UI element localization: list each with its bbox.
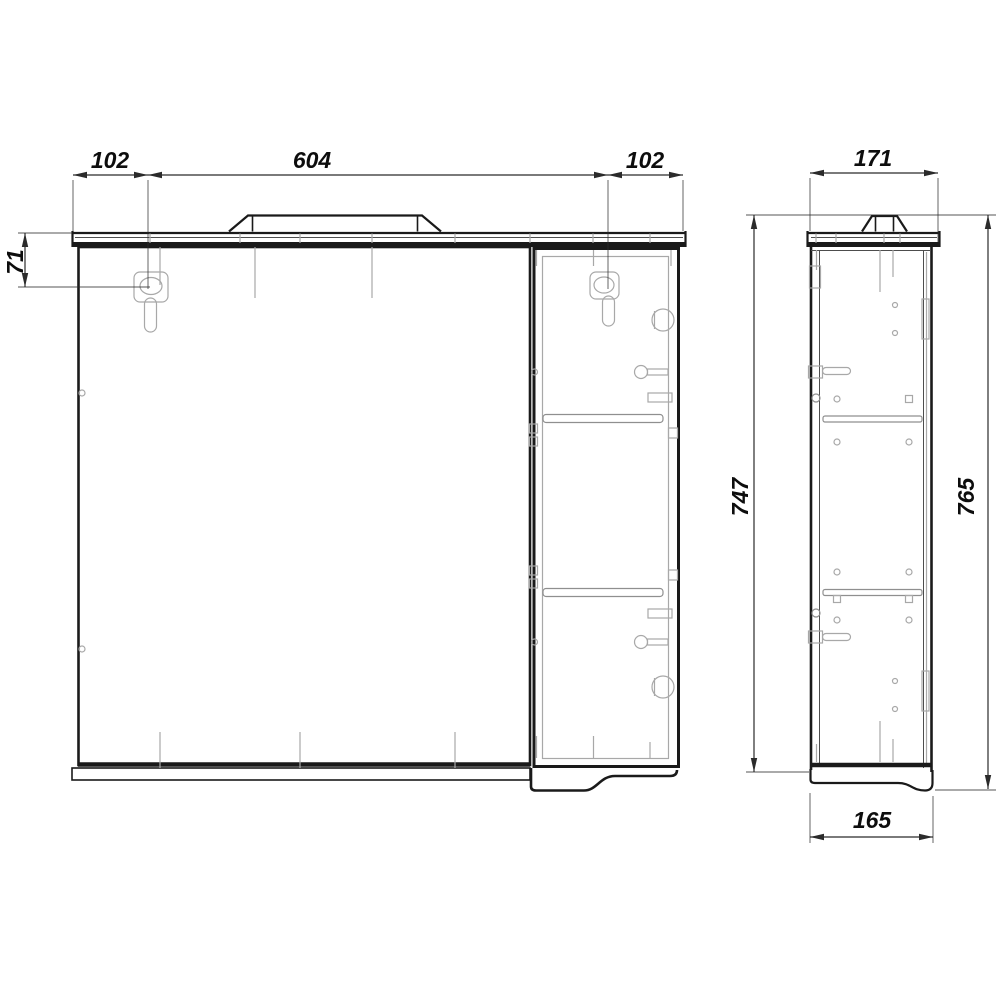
- dim-label-765: 765: [953, 477, 979, 517]
- top-canopy: [72, 231, 686, 247]
- dim-front-width-center: 604: [148, 147, 608, 175]
- side-top-canopy: [808, 231, 941, 247]
- dim-label-165: 165: [853, 807, 893, 833]
- front-view: [72, 216, 686, 791]
- shelf-top: [543, 415, 663, 423]
- dim-label-171: 171: [854, 145, 892, 171]
- wall-screw-hole: [812, 394, 820, 402]
- door-bottom-lip: [531, 768, 677, 791]
- door-pin-holes: [893, 303, 898, 712]
- hinge-cup-bottom: [652, 676, 674, 698]
- dim-label-604: 604: [293, 147, 332, 173]
- hinge-plate-bottom: [809, 631, 851, 643]
- hinge-cup-top: [652, 309, 674, 331]
- canopy-dowel-marks: [150, 234, 650, 244]
- side-lamp-housing: [862, 216, 907, 232]
- shelf-bottom: [543, 589, 663, 597]
- mirror-cabinet-drawing: 102 604 102 71 171 747: [0, 0, 1000, 1000]
- shelf-pin-top: [532, 366, 669, 379]
- technical-drawing-canvas: 102 604 102 71 171 747: [0, 0, 1000, 1000]
- side-wall-ticks: [530, 424, 678, 588]
- hinge-plate-top: [809, 366, 851, 378]
- side-shelf-top: [823, 416, 922, 422]
- mirror-panel: [72, 247, 530, 780]
- dim-side-depth-top: 171: [810, 145, 938, 242]
- shelf-pin-bottom: [532, 636, 669, 649]
- dim-side-height-total: 765: [935, 215, 996, 790]
- dim-label-71: 71: [2, 249, 28, 275]
- side-shelf-bottom: [823, 590, 922, 596]
- lamp-housing: [229, 216, 441, 232]
- side-bottom-strip: [811, 769, 933, 791]
- side-dowel-marks: [817, 250, 894, 762]
- cabinet-dowel-marks: [537, 250, 672, 758]
- keyhole-hanger-left: [134, 272, 168, 332]
- dim-front-width-right: 102: [608, 147, 683, 289]
- dim-label-747: 747: [727, 477, 753, 517]
- dim-label-102-left: 102: [91, 147, 130, 173]
- open-cabinet: [530, 249, 679, 791]
- wall-screw-hole: [812, 609, 820, 617]
- dim-hanger-offset: 71: [2, 233, 150, 287]
- shelf-pin-holes: [834, 396, 913, 624]
- side-body: [811, 247, 933, 791]
- dim-front-width-left: 102: [73, 147, 148, 289]
- keyhole-hanger-right: [590, 272, 619, 326]
- side-view: [808, 216, 941, 791]
- bottom-strip: [72, 768, 530, 780]
- dimensions: 102 604 102 71 171 747: [2, 145, 996, 843]
- cabinet-inner-face: [543, 257, 669, 759]
- mirror-dowel-marks: [160, 247, 455, 768]
- edge-screw-hole: [79, 390, 85, 396]
- side-interior-details: [809, 250, 930, 762]
- dim-label-102-right: 102: [626, 147, 665, 173]
- dim-side-depth-bottom: 165: [810, 793, 933, 843]
- edge-screw-hole: [79, 646, 85, 652]
